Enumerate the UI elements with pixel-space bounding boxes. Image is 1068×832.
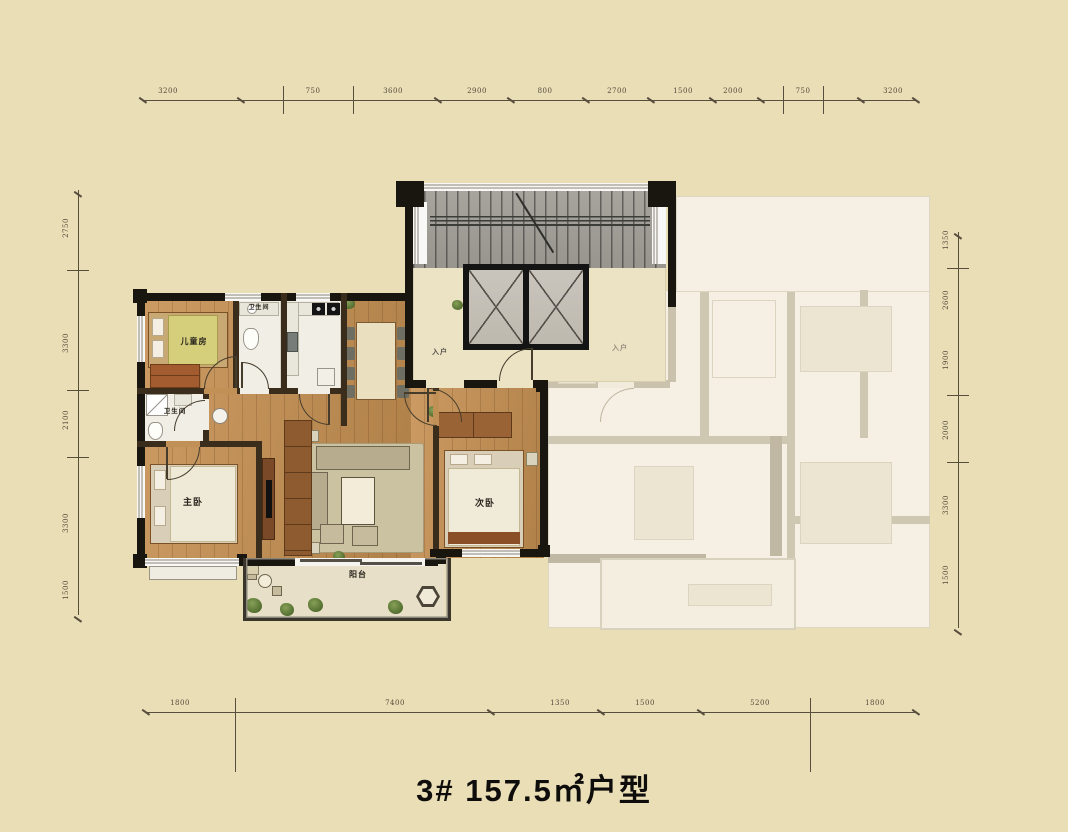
faded-furniture — [800, 462, 892, 544]
wall-core-right — [668, 183, 676, 307]
bay-window-sill — [149, 566, 237, 580]
elevator-right — [529, 270, 583, 344]
pillow — [450, 454, 468, 465]
interior-wall — [256, 441, 262, 558]
wall-right — [540, 386, 548, 557]
window-secondary — [462, 549, 520, 557]
stove-burner — [312, 303, 325, 315]
pillow — [154, 470, 166, 490]
sliding-door-panel — [360, 562, 422, 565]
faded-wall — [548, 436, 788, 444]
kitchen-sink — [287, 332, 298, 352]
plant — [452, 300, 463, 310]
window-top-kitchen — [296, 293, 330, 301]
faded-wall — [770, 436, 782, 556]
room-label-bath-north: 卫生间 — [237, 305, 281, 311]
corridor-entry-label-left: 入户 — [420, 349, 460, 356]
window-left-master — [137, 466, 145, 518]
stair-window-right — [652, 202, 666, 264]
nightstand — [526, 452, 538, 466]
elevator-left — [469, 270, 523, 344]
room-label-bath-west: 卫生间 — [150, 409, 200, 416]
balcony-rail — [243, 558, 451, 621]
faded-unit-top-room — [676, 196, 930, 292]
pillow — [154, 506, 166, 526]
faded-furniture — [712, 300, 776, 378]
faded-wall — [700, 292, 709, 438]
bay-window-master — [145, 558, 239, 566]
door-gap-entry — [426, 380, 464, 388]
room-label-secondary-bedroom: 次卧 — [455, 499, 515, 508]
armchair — [320, 524, 344, 544]
pillow — [152, 318, 164, 336]
stairwell-window-top — [424, 183, 648, 191]
stair-rails — [430, 216, 650, 226]
faded-wall — [668, 300, 676, 382]
toilet — [148, 422, 163, 440]
room-label-children-bedroom: 儿童房 — [168, 338, 220, 346]
wall-top — [137, 293, 413, 301]
window-left-children — [137, 316, 145, 362]
fridge — [317, 368, 335, 386]
interior-wall — [341, 293, 347, 426]
pillow — [152, 340, 164, 358]
door-gap-corridor — [497, 380, 533, 388]
room-label-balcony: 阳台 — [330, 571, 386, 579]
pillow — [474, 454, 492, 465]
wall-core-corner-left — [396, 181, 424, 207]
faded-furniture — [634, 466, 694, 540]
washing-machine — [212, 408, 228, 424]
sofa-main — [316, 446, 410, 470]
wardrobe — [284, 420, 312, 556]
faded-furniture — [688, 584, 772, 606]
sliding-door-panel — [300, 559, 362, 562]
stove-burner — [327, 303, 340, 315]
plan-title: 3# 157.5㎡户型 — [0, 765, 1068, 810]
toilet — [243, 328, 259, 350]
faded-furniture — [800, 306, 892, 372]
coffee-table — [341, 477, 375, 525]
interior-wall — [281, 293, 287, 390]
room-label-master-bedroom: 主卧 — [163, 498, 223, 507]
wall-corner — [133, 289, 147, 303]
wall-core-left — [405, 183, 413, 388]
armchair — [352, 526, 378, 546]
floor-plan-page: 儿童房 卫生间 卫生间 主卧 次卧 阳台 入户 入户 3200750360029… — [0, 0, 1068, 832]
tv — [266, 480, 272, 518]
wall-corner — [536, 380, 548, 392]
dresser-children — [150, 364, 200, 388]
window-top-children — [225, 293, 261, 301]
bed-throw — [448, 532, 520, 544]
corridor-entry-label-right: 入户 — [600, 345, 640, 352]
wall-corner — [538, 545, 550, 557]
stair-window-left — [413, 202, 427, 264]
dining-table — [356, 322, 396, 400]
